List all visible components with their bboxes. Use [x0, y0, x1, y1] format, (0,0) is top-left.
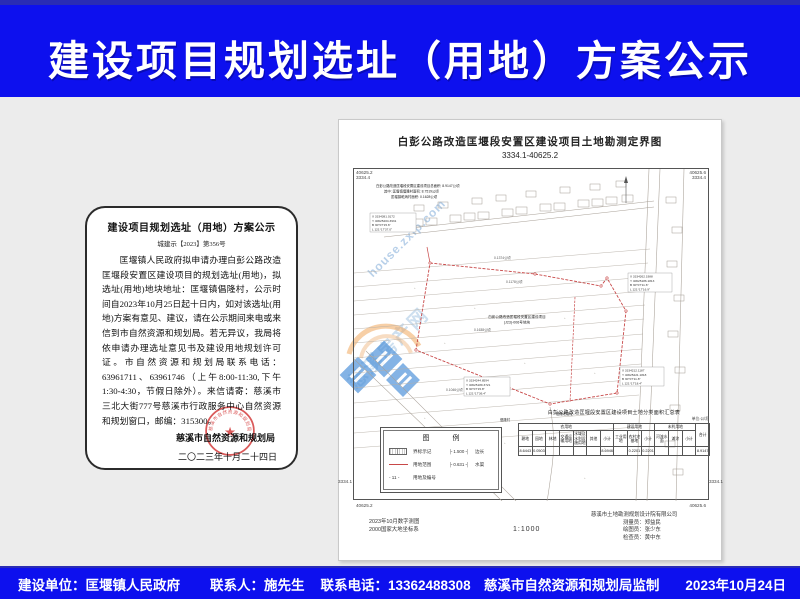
coord-block-3-y: Y 40625189.3721	[466, 383, 491, 387]
stamp-star-icon: ★	[224, 425, 236, 440]
north-arrow-icon	[624, 176, 628, 203]
area-label-2: 0.1178公顷	[506, 279, 523, 284]
legend-length-symbol: ├ 1.500 ┤	[449, 449, 475, 454]
coord-block-4-x: X 3334212.1187	[622, 368, 645, 372]
survey-note-1: 2023年10月数字测图	[369, 518, 419, 526]
grid-label-bottom-right-x: 3334.1	[709, 479, 723, 484]
summary-table: 农用地 建设用地 未利用地 合计 耕地园地 林地交通运输用地 水域及水利设施用地…	[518, 423, 710, 456]
legend-label-r2: 水渠	[475, 462, 499, 468]
area-label-4: 0.1046公顷	[446, 387, 463, 392]
coord-block-1-b: B 30°07'15.6"	[372, 223, 391, 227]
area-note-line3: 匡堰镇乾炳村面积: 0.1628公顷	[391, 194, 438, 199]
coord-block-3-l: L 121°17'36.4"	[466, 392, 486, 396]
coord-block-2-l: L 121°17'16.9"	[630, 288, 650, 292]
svg-text:+: +	[414, 286, 416, 290]
draftsman: 绘图员：张少东	[623, 527, 677, 535]
parcel-project-label: 白彭公路改造匡堰段安置区建设项目	[488, 314, 546, 319]
coord-block-2-y: Y 40625186.1813	[630, 279, 655, 283]
map-scale: 1:1000	[513, 526, 540, 533]
area-label-3: 0.1638公顷	[474, 327, 491, 332]
survey-company: 慈溪市土地勘测规划设计院有限公司	[591, 512, 677, 520]
page-title: 建设项目规划选址（用地）方案公示	[0, 27, 800, 87]
area-note-line1: 白彭公路改造匡堰段安置区建设项目总面积: 8.9147公顷	[376, 183, 460, 188]
svg-text:+: +	[524, 361, 526, 365]
svg-text:+: +	[584, 476, 586, 480]
survey-map-document: 白彭公路改造匡堰段安置区建设项目土地勘测定界图 3334.1-40625.2 h…	[338, 119, 722, 561]
footer-supervision: 慈溪市自然资源和规划局监制	[484, 574, 660, 594]
inspector: 检查员：黄中东	[623, 535, 677, 543]
legend-title: 图 例	[389, 433, 493, 443]
footer-phone: 联系电话：13362488308	[321, 574, 471, 594]
legend-label-1: 界标示记	[413, 449, 449, 455]
map-title: 白彭公路改造匡堰段安置区建设项目土地勘测定界图	[339, 134, 721, 149]
grid-label-bottom-left-y: 40625.2	[356, 503, 373, 508]
coord-block-4-l: L 121°17'18.4"	[622, 382, 642, 386]
notice-document: 建设项目规划选址（用地）方案公示 城建示【2023】第356号 匡堰镇人民政府拟…	[85, 206, 298, 470]
land-boundary-polygon	[415, 247, 627, 405]
notice-body: 匡堰镇人民政府拟申请办理白彭公路改造匡堰段安置区建设项目的规划选址(用地)，拟选…	[102, 253, 281, 428]
legend-label-r1: 边长	[475, 449, 499, 455]
coord-block-1-y: Y 40625204.3931	[372, 219, 397, 223]
summary-table-unit: 单位:公顷	[518, 417, 708, 422]
svg-text:+: +	[564, 316, 566, 320]
legend-boundary-mark-icon	[389, 448, 407, 455]
svg-text:+: +	[504, 441, 506, 445]
svg-text:+: +	[594, 371, 596, 375]
svg-text:+: +	[474, 306, 476, 310]
grid-label-top-right: 40625.63334.4	[689, 170, 706, 181]
summary-table-title: 白彭公路改造匡堰段安置区建设项目土地分类面积汇总表	[518, 409, 710, 416]
announcement-page: 建设项目规划选址（用地）方案公示 建设项目规划选址（用地）方案公示 城建示【20…	[0, 0, 800, 599]
legend-label-2: 用地范围	[413, 462, 449, 468]
grid-label-bottom-right-y: 40625.6	[689, 503, 706, 508]
coord-block-3-b: B 30°07'15.8"	[466, 387, 485, 391]
coord-block-4-b: B 30°07'11.8"	[622, 377, 641, 381]
place-label-2: 倡隆村	[500, 417, 511, 422]
coord-block-1-x: X 3334381.0172	[372, 214, 395, 218]
coord-block-3-x: X 3334244.8594	[466, 378, 489, 382]
grid-label-bottom-left-x: 3334.1	[338, 479, 352, 484]
header-banner: 建设项目规划选址（用地）方案公示	[0, 0, 800, 97]
footer-date: 2023年10月24日	[685, 574, 786, 594]
legend-ditch-symbol: ├ 0.631 ┤	[449, 462, 475, 467]
legend-label-3: 用地及编号	[413, 475, 449, 481]
svg-text:+: +	[424, 416, 426, 420]
map-sheet-number: 3334.1-40625.2	[339, 151, 721, 160]
footer-contact: 联系人：施先生	[210, 574, 305, 594]
area-label-1: 0.1374公顷	[494, 255, 511, 260]
coord-block-1-l: L 121°17'37.0"	[372, 228, 392, 232]
map-frame: +++ +++ +++ ++	[353, 168, 709, 500]
legend-parcel-code: - 11 -	[389, 475, 413, 480]
legend-boundary-line-icon	[389, 464, 408, 465]
grid-label-top-left: 40625.23334.4	[356, 170, 373, 181]
survey-note-2: 2000国家大地坐标系	[369, 526, 419, 534]
area-note-line2: 其中: 匡堰镇倡隆村面积: 8.7519公顷	[384, 188, 439, 193]
svg-text:+: +	[444, 341, 446, 345]
coord-block-2-x: X 3334262.1988	[630, 274, 653, 278]
footer-bar: 建设单位：匡堰镇人民政府 联系人：施先生 联系电话：13362488308 慈溪…	[0, 566, 800, 599]
notice-doc-number: 城建示【2023】第356号	[102, 238, 281, 248]
coord-block-4-y: Y 40625221.1818	[622, 373, 647, 377]
land-area-summary: 白彭公路改造匡堰段安置区建设项目土地分类面积汇总表 单位:公顷 农用地 建设用地…	[518, 409, 710, 456]
footer-builder: 建设单位：匡堰镇人民政府	[18, 574, 180, 594]
notice-title: 建设项目规划选址（用地）方案公示	[102, 219, 281, 234]
parcel-number-label: (J23)-006号地块	[504, 320, 531, 325]
map-legend: 图 例 界标示记 ├ 1.500 ┤ 边长 用地范围 ├ 0.631 ┤ 水渠 …	[380, 427, 502, 493]
official-seal-stamp: ★ 慈溪市自然资源和规划局	[203, 404, 257, 458]
coord-block-2-b: B 30°07'11.6"	[630, 283, 649, 287]
